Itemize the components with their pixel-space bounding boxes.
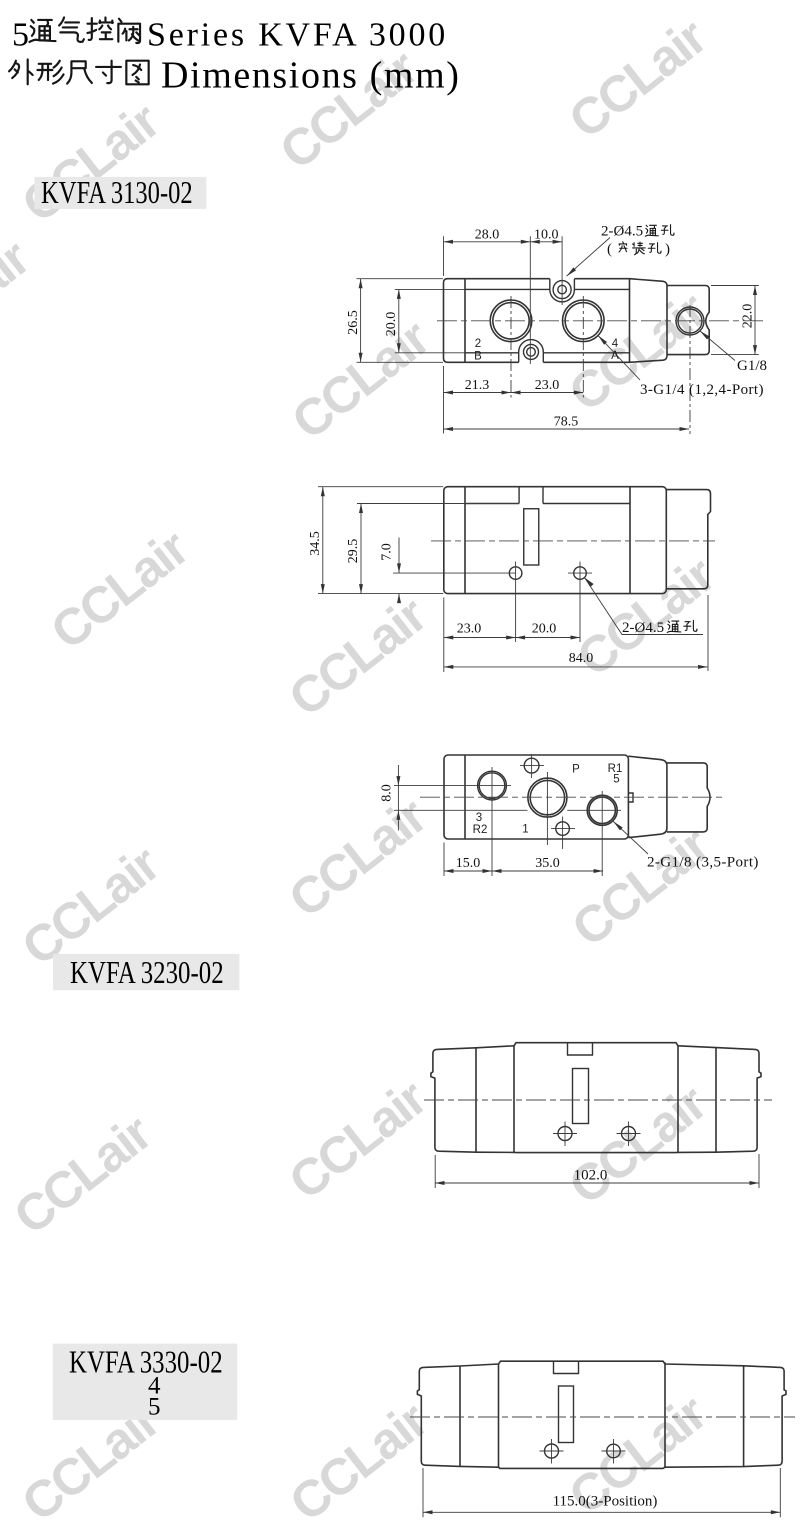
svg-text:10.0: 10.0: [534, 227, 559, 242]
svg-text:22.0: 22.0: [740, 304, 755, 329]
svg-text:84.0: 84.0: [569, 651, 594, 666]
svg-text:5: 5: [148, 1394, 161, 1421]
svg-text:5: 5: [12, 17, 29, 54]
svg-text:5: 5: [613, 774, 619, 786]
svg-text:2-Ø4.5: 2-Ø4.5: [601, 224, 643, 240]
svg-text:23.0: 23.0: [535, 378, 560, 393]
svg-text:4: 4: [612, 338, 619, 350]
svg-text:2-G1/8 (3,5-Port): 2-G1/8 (3,5-Port): [647, 855, 759, 871]
svg-text:A: A: [611, 350, 619, 362]
svg-text:23.0: 23.0: [457, 622, 482, 637]
svg-text:1: 1: [522, 824, 528, 836]
svg-text:Series KVFA 3000: Series KVFA 3000: [147, 17, 448, 54]
svg-text:2-Ø4.5: 2-Ø4.5: [622, 620, 664, 636]
svg-text:Dimensions (mm): Dimensions (mm): [161, 55, 460, 97]
svg-text:20.0: 20.0: [532, 622, 557, 637]
svg-text:115.0(3-Position): 115.0(3-Position): [553, 1494, 658, 1510]
svg-text:KVFA 3230-02: KVFA 3230-02: [70, 956, 224, 990]
svg-text:KVFA 3330-02: KVFA 3330-02: [69, 1346, 223, 1380]
svg-text:15.0: 15.0: [456, 856, 481, 871]
svg-text:R2: R2: [473, 824, 488, 836]
svg-text:78.5: 78.5: [554, 414, 579, 429]
svg-text:P: P: [572, 764, 580, 776]
svg-text:(: (: [607, 242, 612, 258]
svg-text:102.0: 102.0: [574, 1168, 608, 1184]
svg-text:3-G1/4 (1,2,4-Port): 3-G1/4 (1,2,4-Port): [640, 382, 764, 398]
svg-text:35.0: 35.0: [535, 856, 560, 871]
svg-text:2: 2: [475, 338, 481, 350]
svg-text:26.5: 26.5: [346, 310, 361, 335]
svg-text:21.3: 21.3: [465, 378, 490, 393]
svg-text:KVFA 3130-02: KVFA 3130-02: [41, 176, 193, 211]
svg-text:B: B: [474, 351, 482, 363]
svg-text:20.0: 20.0: [384, 312, 399, 337]
svg-text:8.0: 8.0: [380, 784, 395, 802]
svg-text:34.5: 34.5: [308, 531, 323, 556]
svg-text:): ): [665, 242, 670, 258]
svg-text:G1/8: G1/8: [737, 358, 767, 374]
svg-text:7.0: 7.0: [380, 543, 395, 561]
svg-text:3: 3: [476, 812, 482, 824]
svg-text:28.0: 28.0: [475, 227, 500, 242]
svg-text:29.5: 29.5: [346, 539, 361, 564]
